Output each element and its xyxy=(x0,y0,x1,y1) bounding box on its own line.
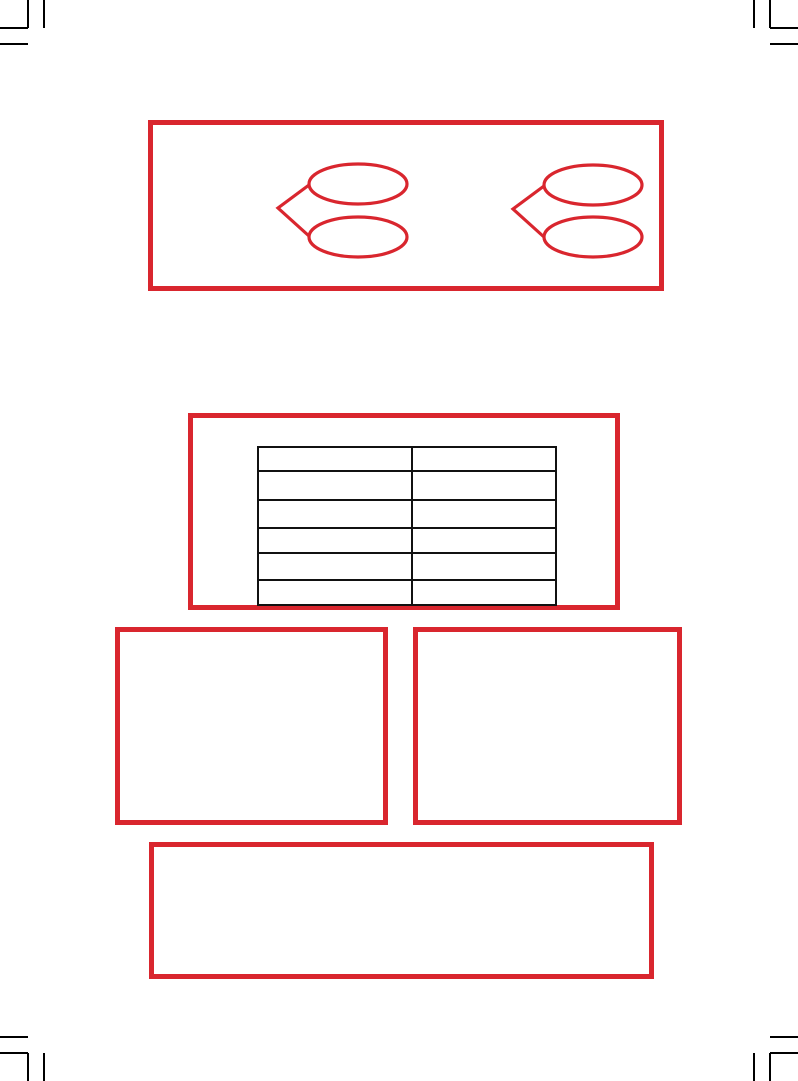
crop-mark-line xyxy=(770,1052,798,1054)
crop-mark-line xyxy=(43,0,45,28)
crop-mark-line xyxy=(0,1052,28,1054)
table-row xyxy=(258,528,556,553)
crop-mark-line xyxy=(770,43,798,45)
crop-mark-line xyxy=(0,27,28,29)
table-row xyxy=(258,471,556,500)
crop-mark-line xyxy=(0,43,28,45)
blank-table xyxy=(257,446,557,606)
table-cell xyxy=(258,553,412,580)
table-cell xyxy=(412,553,556,580)
crop-mark-line xyxy=(769,0,771,28)
crop-mark-line xyxy=(770,1036,798,1038)
table-row xyxy=(258,500,556,528)
bubble-bottom xyxy=(544,217,642,257)
bubble-top xyxy=(309,164,407,204)
right-panel xyxy=(413,627,682,825)
bubble-bottom xyxy=(309,217,407,257)
table-row xyxy=(258,580,556,605)
branch-chevron xyxy=(278,185,309,236)
table-cell xyxy=(258,580,412,605)
crop-mark-line xyxy=(0,1036,28,1038)
table-cell xyxy=(412,580,556,605)
double-bubble-diagram xyxy=(153,125,659,286)
table-cell xyxy=(258,471,412,500)
table-cell xyxy=(258,528,412,553)
branch-shape-right xyxy=(513,165,642,257)
bubble-top xyxy=(544,165,642,205)
left-panel xyxy=(115,627,388,825)
table-cell xyxy=(258,500,412,528)
branch-chevron xyxy=(513,186,544,237)
table-cell xyxy=(412,500,556,528)
table-cell xyxy=(258,447,412,471)
page xyxy=(0,0,798,1081)
crop-mark-line xyxy=(753,0,755,28)
top-panel xyxy=(148,120,664,291)
bottom-panel xyxy=(149,842,654,979)
table-row xyxy=(258,447,556,471)
crop-mark-line xyxy=(27,0,29,28)
table-cell xyxy=(412,447,556,471)
crop-mark-line xyxy=(770,27,798,29)
crop-mark-line xyxy=(753,1053,755,1081)
branch-shape-left xyxy=(278,164,407,257)
middle-panel xyxy=(188,413,620,610)
table-cell xyxy=(412,528,556,553)
crop-mark-line xyxy=(769,1053,771,1081)
table-cell xyxy=(412,471,556,500)
crop-mark-line xyxy=(43,1053,45,1081)
crop-mark-line xyxy=(27,1053,29,1081)
table-row xyxy=(258,553,556,580)
